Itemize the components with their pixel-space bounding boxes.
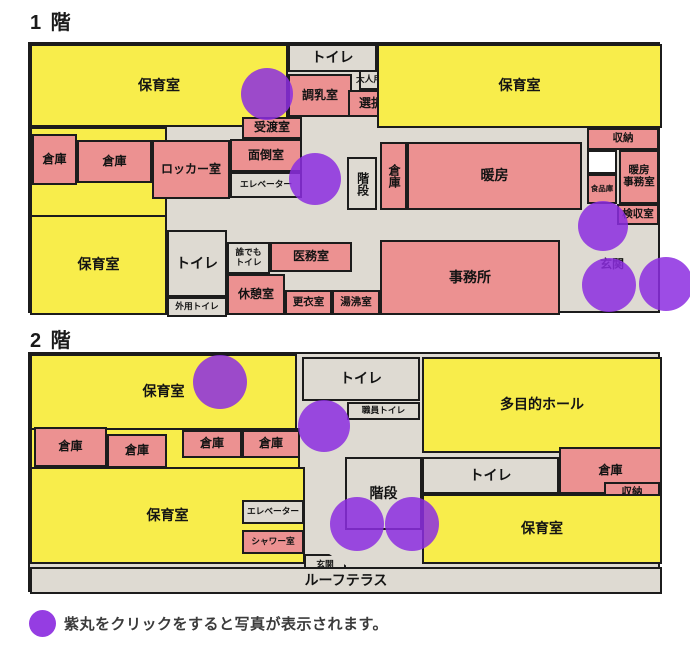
photo-spot-circle[interactable] <box>289 153 341 205</box>
room-hot-water-room: 湯沸室 <box>332 290 380 315</box>
room-outdoor-toilet: 外用トイレ <box>167 297 227 317</box>
floor2-plan: 保育室保育室倉庫倉庫倉庫倉庫トイレ職員トイレ多目的ホール倉庫収納トイレ階段保育室… <box>28 352 660 592</box>
photo-spot-circle[interactable] <box>385 497 439 551</box>
photo-spot-circle[interactable] <box>193 355 247 409</box>
room-heating-office: 暖房事務室 <box>619 150 659 204</box>
photo-spot-circle[interactable] <box>582 258 636 312</box>
room-accessible-toilet: 誰でもトイレ <box>227 242 270 274</box>
room-nursery-room-n: 保育室 <box>30 354 297 430</box>
room-toilet-east: トイレ <box>422 457 559 494</box>
room-elevator: エレベーター <box>242 500 304 524</box>
room-storage-3: 倉庫 <box>182 430 242 458</box>
room-milk-prep-room: 調乳室 <box>288 74 352 117</box>
room-toilet-north: トイレ <box>302 357 420 401</box>
room-storage-shelf: 収納 <box>587 128 659 150</box>
room-handover-room: 受渡室 <box>242 117 302 139</box>
legend: 紫丸をクリックをすると写真が表示されます。 <box>29 610 388 637</box>
room-storage-4: 倉庫 <box>242 430 300 458</box>
room-locker-room: ロッカー室 <box>152 140 230 199</box>
room-nursery-room-ne: 保育室 <box>377 44 662 128</box>
photo-spot-circle[interactable] <box>639 257 690 311</box>
photo-spot-circle[interactable] <box>241 68 293 120</box>
photo-spot-circle[interactable] <box>578 201 628 251</box>
room-unlabeled-room <box>587 150 617 174</box>
room-changing-room: 更衣室 <box>285 290 332 315</box>
room-storage-c: 倉庫 <box>380 142 407 210</box>
floor2-title: 2 階 <box>30 324 73 353</box>
room-stairs: 階段 <box>347 157 377 210</box>
room-heating-room: 暖房 <box>407 142 582 210</box>
room-roof-terrace: ルーフテラス <box>30 567 662 594</box>
room-storage-b: 倉庫 <box>77 140 152 183</box>
purple-circle-icon <box>29 610 56 637</box>
room-office: 事務所 <box>380 240 560 315</box>
floor1-title: 1 階 <box>30 6 73 35</box>
room-toilet-west: トイレ <box>167 230 227 297</box>
photo-spot-circle[interactable] <box>330 497 384 551</box>
room-food-storage: 食品庫 <box>587 174 617 204</box>
legend-text: 紫丸をクリックをすると写真が表示されます。 <box>64 613 388 634</box>
room-medical-room: 医務室 <box>270 242 352 272</box>
room-storage-1: 倉庫 <box>34 427 107 467</box>
room-storage-2: 倉庫 <box>107 434 167 468</box>
room-break-room: 休憩室 <box>227 274 285 315</box>
floor1-plan: 保育室保育室トイレ調乳室大人用トイレ選択室受渡室面倒室ロッカー室エレベーター倉庫… <box>28 42 660 313</box>
room-shower-room: シャワー室 <box>242 530 304 554</box>
room-multipurpose-hall: 多目的ホール <box>422 357 662 453</box>
room-nursery-room-sw: 保育室 <box>30 215 167 315</box>
room-toilet-north: トイレ <box>288 44 377 72</box>
room-staff-toilet: 職員トイレ <box>347 402 420 420</box>
room-nursery-room-se: 保育室 <box>422 494 662 564</box>
room-storage-a: 倉庫 <box>32 134 77 185</box>
photo-spot-circle[interactable] <box>298 400 350 452</box>
